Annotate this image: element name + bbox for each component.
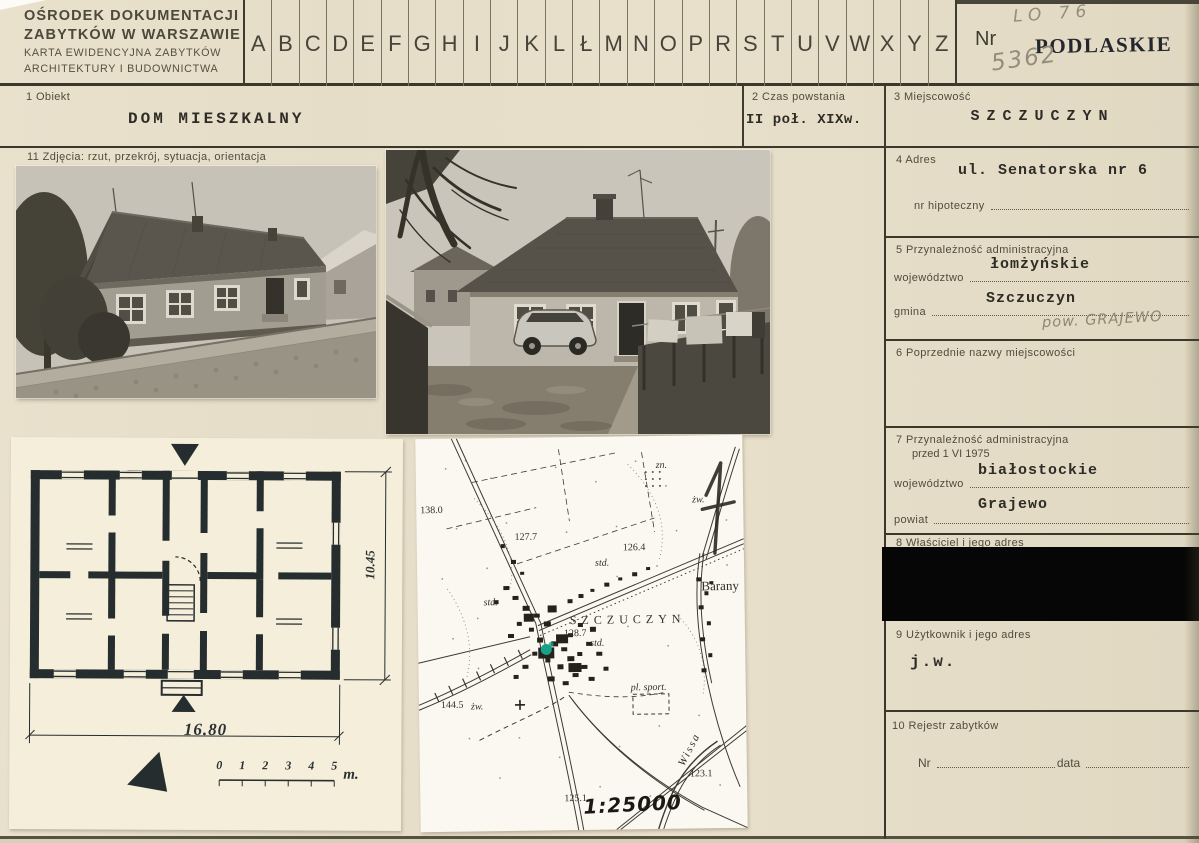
powiat-value: Grajewo — [978, 496, 1048, 513]
powiat-label: powiat — [894, 514, 928, 526]
alphabet-cell-B: B — [272, 0, 299, 86]
map-label: std. — [590, 638, 604, 649]
plan-height-dimension: 10.45 — [362, 543, 378, 587]
field-admin-current: 5 Przynależność administracyjna łomżyńsk… — [886, 238, 1199, 341]
floor-plan-sheet: 16.80 10.45 012345 m. — [9, 437, 403, 831]
field-user: 9 Użytkownik i jego adres j.w. — [886, 621, 1199, 712]
map-scale-note: 1:25000 — [583, 790, 683, 819]
handwritten-code-top: LO 76 — [1012, 1, 1093, 26]
alphabet-cell-Y: Y — [901, 0, 928, 86]
photo-yard-view — [386, 150, 770, 434]
field-date-value: II poł. XIXw. — [746, 112, 862, 128]
alphabet-cell-M: M — [600, 0, 627, 86]
photo-yard-view-image — [386, 150, 770, 434]
card-header: OŚRODEK DOKUMENTACJI ZABYTKÓW W WARSZAWI… — [0, 0, 1199, 86]
alphabet-cell-O: O — [655, 0, 682, 86]
alphabet-cell-N: N — [628, 0, 655, 86]
map-label: std. — [483, 597, 497, 608]
alphabet-cell-C: C — [300, 0, 327, 86]
gmina-label: gmina — [894, 306, 926, 318]
map-label: pl. sport. — [631, 682, 667, 693]
plan-scale-unit: m. — [343, 767, 359, 784]
map-label: żw. — [471, 701, 483, 712]
alphabet-cell-K: K — [518, 0, 545, 86]
field-address: 4 Adres ul. Senatorska nr 6 nr hipoteczn… — [886, 148, 1199, 238]
alphabet-cell-F: F — [382, 0, 409, 86]
register-nr-line — [937, 767, 1055, 768]
card-number-box: Nr PODLASKIE LO 76 5362 — [955, 0, 1199, 86]
pen-north-arrow — [702, 463, 735, 553]
field-owner: 8 Właściciel i jego adres — [886, 535, 1199, 621]
map-label: 127.7 — [515, 532, 538, 543]
mortgage-number-label: nr hipoteczny — [914, 200, 985, 212]
alphabet-cell-X: X — [874, 0, 901, 86]
field-town: 3 Miejscowość SZCZUCZYN — [884, 86, 1199, 148]
field-admin-before-label: 7 Przynależność administracyjna — [896, 434, 1069, 446]
field-previous-names: 6 Poprzednie nazwy miejscowości — [886, 341, 1199, 428]
field-date: 2 Czas powstania II poł. XIXw. — [742, 86, 884, 148]
voivodeship-1975-value: białostockie — [978, 462, 1098, 479]
alphabet-cell-P: P — [683, 0, 710, 86]
scan-bottom-margin — [0, 839, 1199, 843]
scale-number: 0 — [213, 758, 225, 773]
field-town-label: 3 Miejscowość — [894, 91, 971, 103]
situation-map-sheet: 138.0127.7126.4std.zn.żw.Baranystd.SZCZU… — [415, 435, 747, 833]
plan-scale-numbers: 012345 — [213, 758, 343, 773]
map-label: std. — [595, 558, 609, 569]
field-user-value: j.w. — [910, 653, 956, 671]
institution-box: OŚRODEK DOKUMENTACJI ZABYTKÓW W WARSZAWI… — [0, 0, 243, 86]
field-object-value: DOM MIESZKALNY — [128, 110, 304, 128]
voivodeship-line — [970, 281, 1189, 282]
alphabet-cell-S: S — [737, 0, 764, 86]
map-label: 126.4 — [623, 542, 646, 553]
field-admin-before-1975: 7 Przynależność administracyjna przed 1 … — [886, 428, 1199, 535]
alphabet-cell-I: I — [464, 0, 491, 86]
map-label: 138.0 — [420, 505, 443, 516]
scale-number: 2 — [259, 758, 271, 773]
register-date-label: data — [1057, 756, 1080, 770]
alphabet-cell-T: T — [765, 0, 792, 86]
scale-number: 5 — [328, 759, 340, 774]
field-admin-before-label2: przed 1 VI 1975 — [912, 448, 990, 460]
field-object: 1 Obiekt DOM MIESZKALNY — [0, 86, 742, 148]
alphabet-cell-R: R — [710, 0, 737, 86]
alphabet-cell-W: W — [847, 0, 874, 86]
fields-row: 1 Obiekt DOM MIESZKALNY 2 Czas powstania… — [0, 86, 1199, 148]
voivodeship-1975-label: województwo — [894, 478, 964, 490]
powiat-line — [934, 523, 1189, 524]
alphabet-cell-V: V — [819, 0, 846, 86]
field-address-label: 4 Adres — [896, 154, 936, 166]
map-label: 123.1 — [690, 768, 713, 779]
photo-street-view — [16, 166, 376, 398]
field-object-label: 1 Obiekt — [26, 91, 70, 103]
alphabet-cell-L: L — [546, 0, 573, 86]
field-previous-names-label: 6 Poprzednie nazwy miejscowości — [896, 347, 1075, 359]
alphabet-cell-H: H — [436, 0, 463, 86]
field-date-label: 2 Czas powstania — [752, 91, 845, 103]
plan-width-dimension: 16.80 — [159, 720, 251, 740]
card-type-line1: KARTA EWIDENCYJNA ZABYTKÓW — [24, 46, 243, 61]
field-town-value: SZCZUCZYN — [886, 108, 1199, 125]
institution-name-line1: OŚRODEK DOKUMENTACJI — [24, 7, 243, 26]
map-label: zn. — [656, 460, 668, 471]
alphabet-cell-J: J — [491, 0, 518, 86]
field-photos-label: 11 Zdjęcia: rzut, przekrój, sytuacja, or… — [27, 151, 266, 163]
handwritten-card-number: 5362 — [990, 41, 1060, 76]
map-label: SZCZUCZYN — [570, 612, 686, 629]
voivodeship-value: łomżyńskie — [990, 256, 1090, 273]
field-register: 10 Rejestr zabytków Nr data — [886, 712, 1199, 843]
institution-name-line2: ZABYTKÓW W WARSZAWIE — [24, 26, 243, 45]
scale-number: 1 — [236, 758, 248, 773]
photo-street-view-image — [16, 166, 376, 398]
alphabet-cell-Z: Z — [929, 0, 955, 86]
field-admin-current-label: 5 Przynależność administracyjna — [896, 244, 1069, 256]
redaction-box — [882, 547, 1199, 621]
voivodeship-1975-line — [970, 487, 1189, 488]
voivodeship-label: województwo — [894, 272, 964, 284]
alphabet-cell-E: E — [354, 0, 381, 86]
card-type-line2: ARCHITEKTURY I BUDOWNICTWA — [24, 62, 243, 77]
map-label: 144.5 — [441, 700, 464, 711]
register-date-line — [1086, 767, 1189, 768]
alphabet-cell-A: A — [245, 0, 272, 86]
mortgage-number-line — [991, 209, 1189, 210]
register-nr-label: Nr — [918, 756, 931, 770]
alphabet-cell-U: U — [792, 0, 819, 86]
map-label: Barany — [701, 578, 739, 595]
alphabet-index: ABCDEFGHIJKLŁMNOPRSTUVWXYZ — [243, 0, 955, 86]
alphabet-cell-G: G — [409, 0, 436, 86]
map-label: 128.7 — [564, 628, 587, 639]
scale-number: 4 — [305, 759, 317, 774]
field-user-label: 9 Użytkownik i jego adres — [896, 629, 1031, 641]
gmina-value: Szczuczyn — [986, 290, 1076, 307]
map-label: żw. — [692, 494, 704, 505]
field-register-label: 10 Rejestr zabytków — [892, 720, 999, 732]
nr-label: Nr — [975, 28, 996, 51]
scale-number: 3 — [282, 758, 294, 773]
details-column: 4 Adres ul. Senatorska nr 6 nr hipoteczn… — [884, 148, 1199, 843]
alphabet-cell-D: D — [327, 0, 354, 86]
field-address-value: ul. Senatorska nr 6 — [958, 162, 1148, 179]
alphabet-cell-Ł: Ł — [573, 0, 600, 86]
heritage-record-card: OŚRODEK DOKUMENTACJI ZABYTKÓW W WARSZAWI… — [0, 0, 1199, 843]
